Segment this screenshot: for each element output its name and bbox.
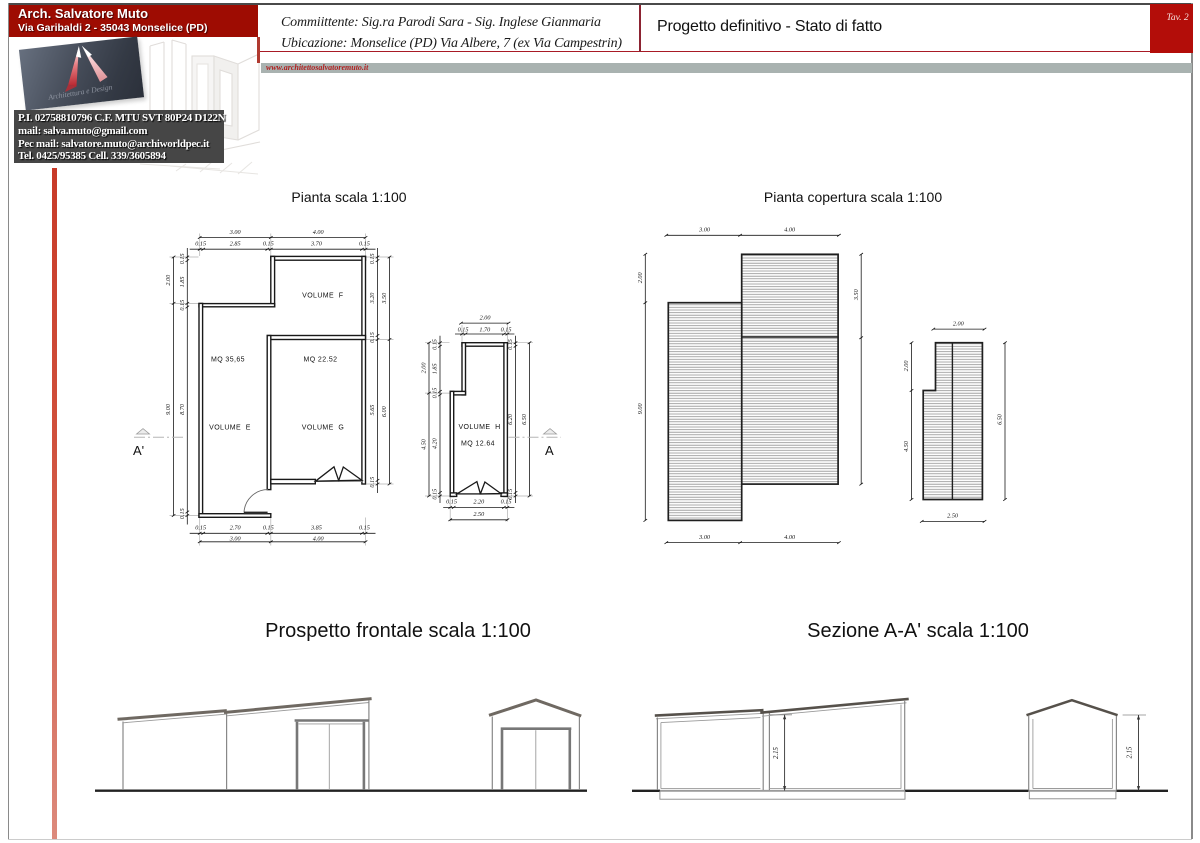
svg-text:0.15: 0.15 — [195, 525, 206, 532]
svg-text:2.85: 2.85 — [230, 241, 241, 248]
svg-text:0.15: 0.15 — [195, 241, 206, 248]
svg-text:2.00: 2.00 — [165, 274, 172, 286]
svg-text:Pianta copertura scala 1:100: Pianta copertura scala 1:100 — [764, 189, 942, 205]
svg-text:4.00: 4.00 — [784, 534, 796, 541]
svg-text:6.50: 6.50 — [521, 413, 528, 425]
svg-text:1.85: 1.85 — [179, 277, 186, 288]
svg-text:A': A' — [133, 443, 144, 458]
svg-text:2.50: 2.50 — [473, 511, 485, 518]
svg-text:9.00: 9.00 — [165, 403, 172, 415]
svg-text:VOLUME H: VOLUME H — [458, 424, 500, 431]
svg-text:0.15: 0.15 — [179, 253, 186, 264]
svg-text:0.15: 0.15 — [501, 499, 512, 506]
svg-text:3.00: 3.00 — [698, 534, 711, 541]
svg-text:0.15: 0.15 — [359, 241, 370, 248]
svg-text:3.85: 3.85 — [310, 525, 322, 532]
svg-text:A: A — [545, 443, 554, 458]
svg-text:3.50: 3.50 — [381, 292, 388, 305]
svg-text:4.00: 4.00 — [313, 536, 325, 543]
svg-text:3.00: 3.00 — [229, 229, 242, 236]
svg-text:0.15: 0.15 — [359, 525, 370, 532]
svg-text:0.15: 0.15 — [369, 477, 376, 488]
svg-text:4.50: 4.50 — [421, 438, 428, 450]
svg-text:2.00: 2.00 — [637, 271, 644, 283]
svg-text:1.85: 1.85 — [432, 363, 439, 374]
svg-text:8.70: 8.70 — [179, 403, 186, 415]
svg-text:0.15: 0.15 — [369, 253, 376, 264]
svg-text:5.65: 5.65 — [369, 405, 376, 416]
svg-text:Prospetto frontale scala 1:10: Prospetto frontale scala 1:100 — [265, 620, 531, 642]
svg-text:4.00: 4.00 — [784, 227, 796, 234]
svg-text:0.15: 0.15 — [369, 332, 376, 343]
svg-text:3.50: 3.50 — [853, 288, 860, 301]
svg-text:0.15: 0.15 — [507, 339, 514, 350]
svg-text:6.20: 6.20 — [507, 413, 514, 425]
svg-text:2.00: 2.00 — [903, 360, 910, 372]
svg-text:0.15: 0.15 — [263, 241, 274, 248]
svg-text:3.70: 3.70 — [310, 241, 323, 248]
svg-text:3.20: 3.20 — [369, 292, 376, 305]
svg-text:2.70: 2.70 — [230, 525, 242, 532]
svg-text:9.00: 9.00 — [637, 402, 644, 414]
svg-text:2.15: 2.15 — [1127, 746, 1134, 758]
svg-text:VOLUME F: VOLUME F — [302, 293, 343, 300]
svg-text:4.50: 4.50 — [903, 440, 910, 452]
svg-text:VOLUME E: VOLUME E — [209, 425, 251, 432]
svg-text:0.15: 0.15 — [501, 326, 512, 333]
svg-text:MQ 12.64: MQ 12.64 — [461, 441, 495, 448]
svg-text:Pianta scala 1:100: Pianta scala 1:100 — [291, 189, 406, 205]
svg-text:0.15: 0.15 — [458, 326, 469, 333]
svg-text:VOLUME G: VOLUME G — [302, 425, 345, 432]
svg-text:2.50: 2.50 — [947, 513, 959, 520]
svg-text:2.20: 2.20 — [473, 499, 485, 506]
svg-text:2.00: 2.00 — [421, 362, 428, 374]
svg-text:0.15: 0.15 — [432, 388, 439, 399]
svg-text:1.70: 1.70 — [479, 326, 491, 333]
svg-text:MQ 22.52: MQ 22.52 — [304, 356, 338, 363]
svg-text:Sezione A-A' scala 1:100: Sezione A-A' scala 1:100 — [807, 620, 1029, 642]
svg-text:0.15: 0.15 — [179, 300, 186, 311]
svg-text:4.00: 4.00 — [313, 229, 325, 236]
svg-text:0.15: 0.15 — [263, 525, 274, 532]
svg-text:0.15: 0.15 — [179, 508, 186, 519]
svg-text:0.15: 0.15 — [432, 489, 439, 500]
svg-text:0.15: 0.15 — [432, 339, 439, 350]
svg-text:4.20: 4.20 — [432, 437, 439, 449]
svg-text:2.15: 2.15 — [773, 746, 780, 758]
svg-text:6.50: 6.50 — [997, 413, 1004, 425]
svg-text:2.00: 2.00 — [953, 320, 965, 327]
svg-text:6.00: 6.00 — [381, 405, 388, 417]
svg-text:3.00: 3.00 — [229, 536, 242, 543]
svg-text:MQ 35,65: MQ 35,65 — [211, 356, 245, 363]
svg-text:2.00: 2.00 — [480, 314, 492, 321]
svg-text:0.15: 0.15 — [446, 499, 457, 506]
svg-text:3.00: 3.00 — [698, 227, 711, 234]
